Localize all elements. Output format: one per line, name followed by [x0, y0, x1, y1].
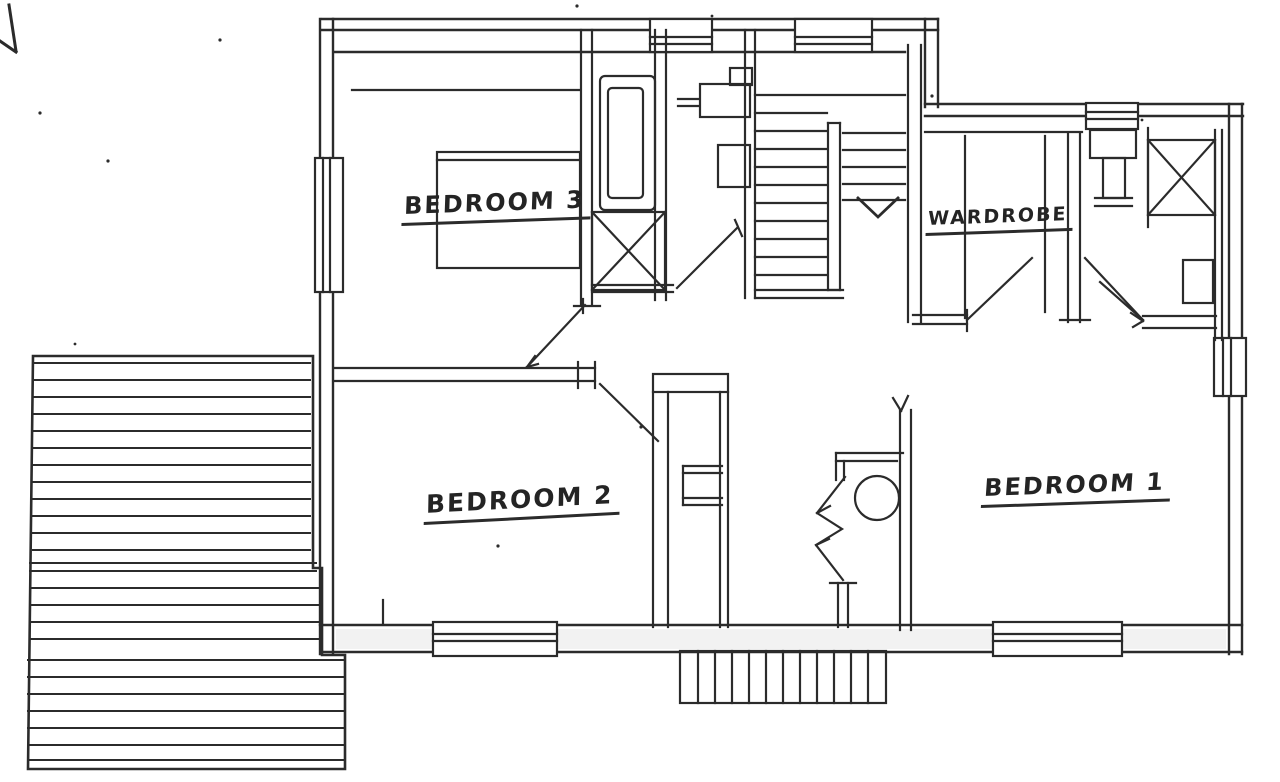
bifold-door [816, 477, 845, 580]
crossed-cupboard-right [1148, 128, 1222, 340]
windows [315, 19, 1246, 656]
floorplan-page: BEDROOM 3 WARDROBE BEDROOM 2 BEDROOM 1 [0, 0, 1280, 782]
toilet-bowl [1103, 158, 1125, 198]
room-label-bedroom-3: BEDROOM 3 [401, 185, 591, 226]
window-left [315, 158, 343, 292]
balcony-deck [28, 356, 345, 769]
bedroom2-door [600, 384, 658, 441]
floorplan-drawing [0, 0, 1280, 782]
window-right [1214, 338, 1246, 396]
door-swing [677, 228, 737, 288]
cupboard-recess [683, 466, 722, 505]
cistern [1090, 130, 1136, 158]
bathroom-cubicle [816, 396, 911, 630]
room-label-bedroom-1: BEDROOM 1 [981, 467, 1172, 508]
window-top-2 [795, 19, 872, 52]
bedroom3-door [527, 305, 585, 367]
window-top-1 [650, 19, 712, 52]
stair-handrail [828, 123, 840, 290]
landing-doors [334, 220, 742, 441]
airing-cupboard [574, 30, 673, 313]
bedroom1-door [1100, 282, 1216, 328]
window-bottom-bedroom1 [993, 622, 1122, 656]
bedroom-3-furniture [352, 90, 580, 268]
wash-basin [855, 476, 899, 520]
window-top-3 [1086, 103, 1138, 129]
deck-hatch-lines [28, 363, 343, 760]
storage-cupboard [653, 374, 728, 627]
landing-fixtures [678, 68, 752, 187]
wall-shelf [1183, 260, 1213, 303]
room-label-wardrobe: WARDROBE [926, 203, 1074, 236]
stray-scribble [0, 5, 16, 52]
external-steps [680, 651, 886, 703]
wardrobe-door [967, 258, 1032, 320]
shelf [836, 453, 903, 480]
staircase [745, 30, 921, 322]
toilet-fixture [1090, 130, 1136, 206]
door-swing [1085, 258, 1143, 320]
